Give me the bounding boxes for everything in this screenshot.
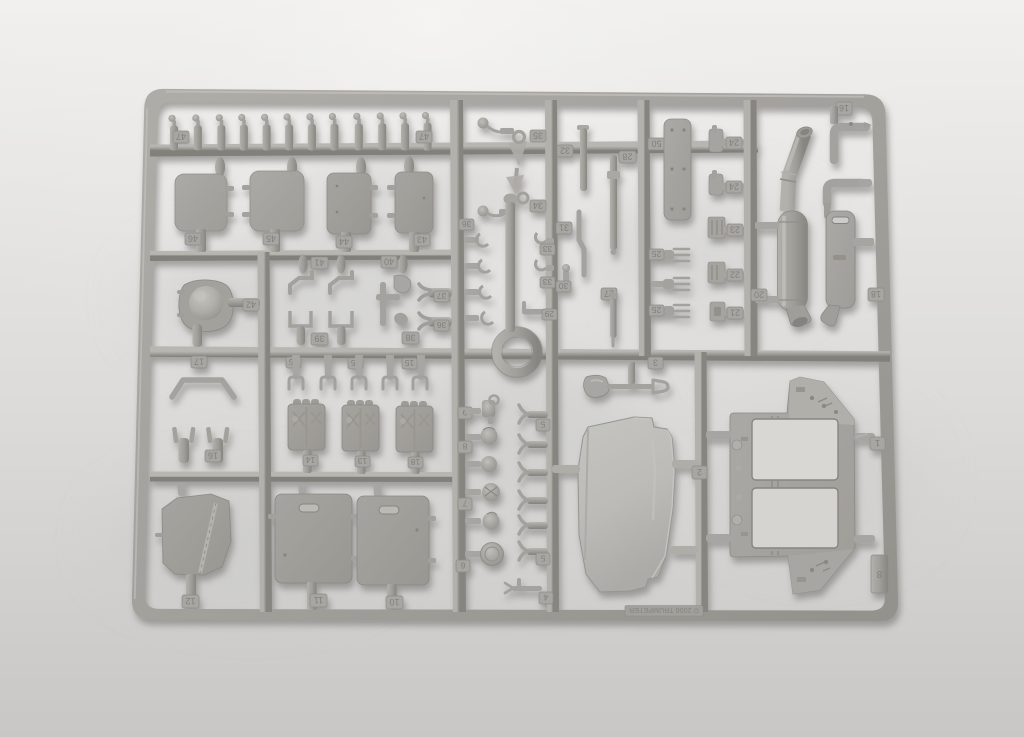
svg-text:8: 8	[462, 442, 467, 452]
svg-text:1: 1	[875, 438, 880, 448]
svg-text:45: 45	[266, 234, 276, 244]
svg-text:40: 40	[384, 257, 394, 267]
svg-text:30: 30	[559, 281, 569, 291]
svg-text:36: 36	[437, 320, 447, 330]
svg-text:46: 46	[188, 234, 198, 244]
svg-text:16: 16	[208, 451, 218, 461]
svg-text:18: 18	[411, 457, 421, 467]
svg-text:2: 2	[697, 467, 702, 477]
svg-text:23: 23	[730, 225, 740, 235]
svg-text:33: 33	[543, 277, 553, 287]
svg-text:25: 25	[652, 249, 662, 259]
svg-text:13: 13	[358, 456, 368, 466]
svg-text:33: 33	[543, 244, 553, 254]
svg-text:38: 38	[405, 333, 415, 343]
svg-text:25: 25	[652, 305, 662, 315]
svg-text:31: 31	[559, 223, 569, 233]
svg-text:43: 43	[417, 235, 427, 245]
svg-text:11: 11	[314, 595, 323, 605]
svg-text:24: 24	[729, 182, 739, 192]
svg-text:17: 17	[194, 357, 204, 367]
svg-text:47: 47	[176, 132, 186, 142]
svg-text:42: 42	[246, 300, 256, 310]
svg-text:32: 32	[560, 146, 570, 156]
svg-text:22: 22	[730, 270, 740, 280]
svg-text:28: 28	[622, 152, 632, 162]
svg-text:34: 34	[533, 201, 543, 211]
svg-text:41: 41	[314, 258, 324, 268]
svg-text:14: 14	[306, 455, 316, 465]
svg-text:37: 37	[437, 291, 447, 301]
svg-text:29: 29	[545, 309, 555, 319]
svg-text:8: 8	[876, 568, 882, 579]
svg-text:39: 39	[314, 334, 324, 344]
svg-text:24: 24	[729, 138, 739, 148]
svg-text:15: 15	[405, 358, 415, 368]
svg-text:21: 21	[730, 308, 740, 318]
svg-text:18: 18	[871, 289, 881, 299]
svg-text:10: 10	[389, 597, 399, 607]
svg-text:4: 4	[543, 593, 548, 603]
svg-text:20: 20	[754, 290, 764, 300]
svg-text:5: 5	[540, 554, 545, 564]
svg-text:44: 44	[339, 237, 349, 247]
svg-text:5: 5	[540, 420, 545, 430]
svg-text:© 2006 TRUMPETER: © 2006 TRUMPETER	[629, 606, 699, 615]
svg-text:7: 7	[462, 499, 467, 509]
svg-text:35: 35	[533, 131, 543, 141]
svg-text:47: 47	[419, 132, 429, 142]
svg-text:6: 6	[460, 561, 465, 571]
svg-text:16: 16	[839, 103, 849, 113]
svg-text:12: 12	[185, 596, 195, 606]
svg-text:36: 36	[462, 219, 472, 229]
svg-text:50: 50	[651, 139, 661, 149]
svg-text:3: 3	[653, 358, 658, 368]
